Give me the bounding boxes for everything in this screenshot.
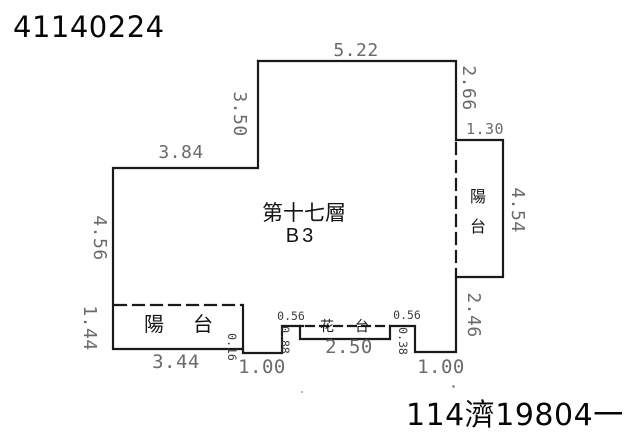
balcony-left-label-char1: 陽 [144, 313, 164, 336]
balcony-right-label-char2: 台 [470, 218, 486, 236]
dim-left-middle: 4.56 [89, 215, 110, 260]
dim-bottom-right-segment: 1.00 [417, 356, 465, 378]
case-number: 114濟19804一 [406, 390, 624, 434]
dim-bottom-left-segment: 1.00 [238, 356, 286, 378]
dim-flower-bed-width: 2.50 [325, 336, 373, 358]
flower-bed-label-char2: 台 [355, 318, 369, 334]
balcony-right-label-char1: 陽 [470, 188, 486, 206]
scan-speck [452, 385, 455, 388]
balcony-left-label-char2: 台 [193, 313, 213, 336]
dim-balcony-left-offset: 0.16 [225, 333, 239, 361]
scan-speck [301, 391, 303, 393]
floor-label: 第十七層 [262, 202, 346, 225]
dim-left-upper: 3.50 [229, 91, 250, 136]
dim-top-width: 5.22 [333, 40, 378, 61]
flower-bed-label-char1: 花 [320, 318, 334, 334]
dim-right-lower: 2.46 [463, 292, 484, 337]
dim-balcony-left-bottom: 3.44 [152, 351, 200, 373]
dim-flower-bed-left-width: 0.56 [277, 309, 305, 323]
floor-plan-drawing: 5.22 1.30 3.84 3.44 1.00 1.00 2.50 0.56 … [0, 0, 640, 440]
dim-flower-bed-right-depth: 0.38 [396, 327, 410, 355]
dim-flower-bed-left-depth: 0.88 [278, 326, 292, 354]
floor-plan-document: 41140224 5.22 1.30 3.84 3.44 1.00 1.00 2… [0, 0, 640, 440]
dim-balcony-right-top: 1.30 [466, 120, 504, 138]
dim-balcony-right-height: 4.54 [507, 187, 528, 232]
unit-label: B3 [286, 225, 316, 247]
dim-flower-bed-right-width: 0.56 [393, 308, 421, 322]
dim-left-lower: 1.44 [79, 305, 100, 350]
dim-right-upper: 2.66 [458, 65, 479, 110]
dim-upper-step-width: 3.84 [158, 142, 203, 163]
